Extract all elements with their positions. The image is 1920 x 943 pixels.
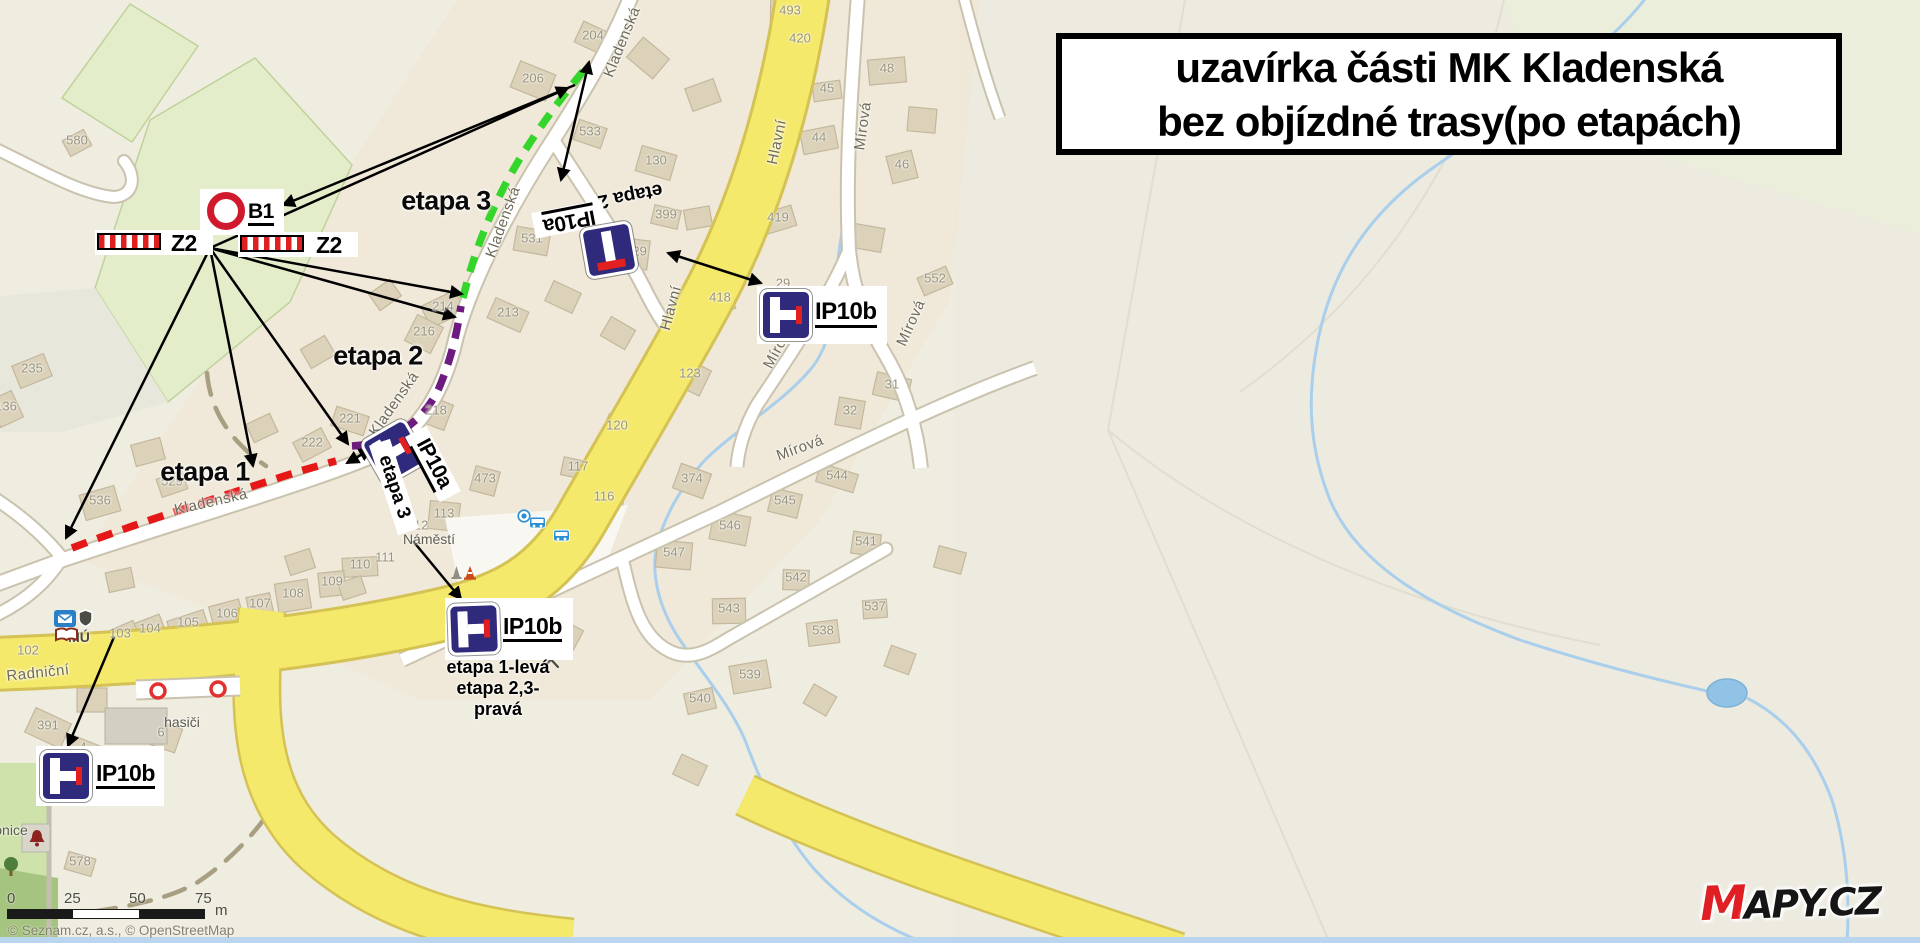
scale-bar: 0 25 50 75 m: [7, 890, 222, 919]
building: [274, 579, 311, 613]
scale-tick: 75: [195, 890, 212, 907]
map-title-line2: bez objízdné trasy(po etapách): [1062, 95, 1836, 149]
building: [806, 620, 840, 647]
logo-m: M: [1699, 876, 1745, 932]
scale-bar-segments: [7, 909, 205, 919]
scale-tick: 0: [7, 890, 15, 907]
building: [729, 660, 771, 694]
map-title-line1: uzavírka části MK Kladenská: [1062, 41, 1836, 95]
building: [867, 57, 906, 85]
building: [683, 206, 712, 230]
map-title-box: uzavírka části MK Kladenská bez objízdné…: [1056, 33, 1842, 155]
water-strip: [0, 937, 1920, 943]
fire-station-building: [105, 708, 167, 744]
gate-marker: [211, 682, 225, 696]
scale-unit: m: [215, 902, 228, 919]
building: [907, 107, 937, 133]
pond: [1707, 679, 1747, 707]
building: [835, 397, 865, 429]
gate-marker: [151, 684, 165, 698]
mapy-cz-logo[interactable]: MAPY.CZ: [1699, 871, 1881, 932]
scale-tick: 50: [129, 890, 146, 907]
attribution: © Seznam.cz, a.s., © OpenStreetMap: [8, 923, 234, 938]
building: [812, 80, 842, 102]
building: [712, 598, 745, 624]
building: [513, 226, 551, 256]
logo-rest: APY.CZ: [1743, 879, 1881, 928]
building: [342, 557, 378, 578]
building: [862, 599, 887, 619]
scale-tick: 25: [64, 890, 81, 907]
bell-tower-building: [22, 824, 50, 852]
